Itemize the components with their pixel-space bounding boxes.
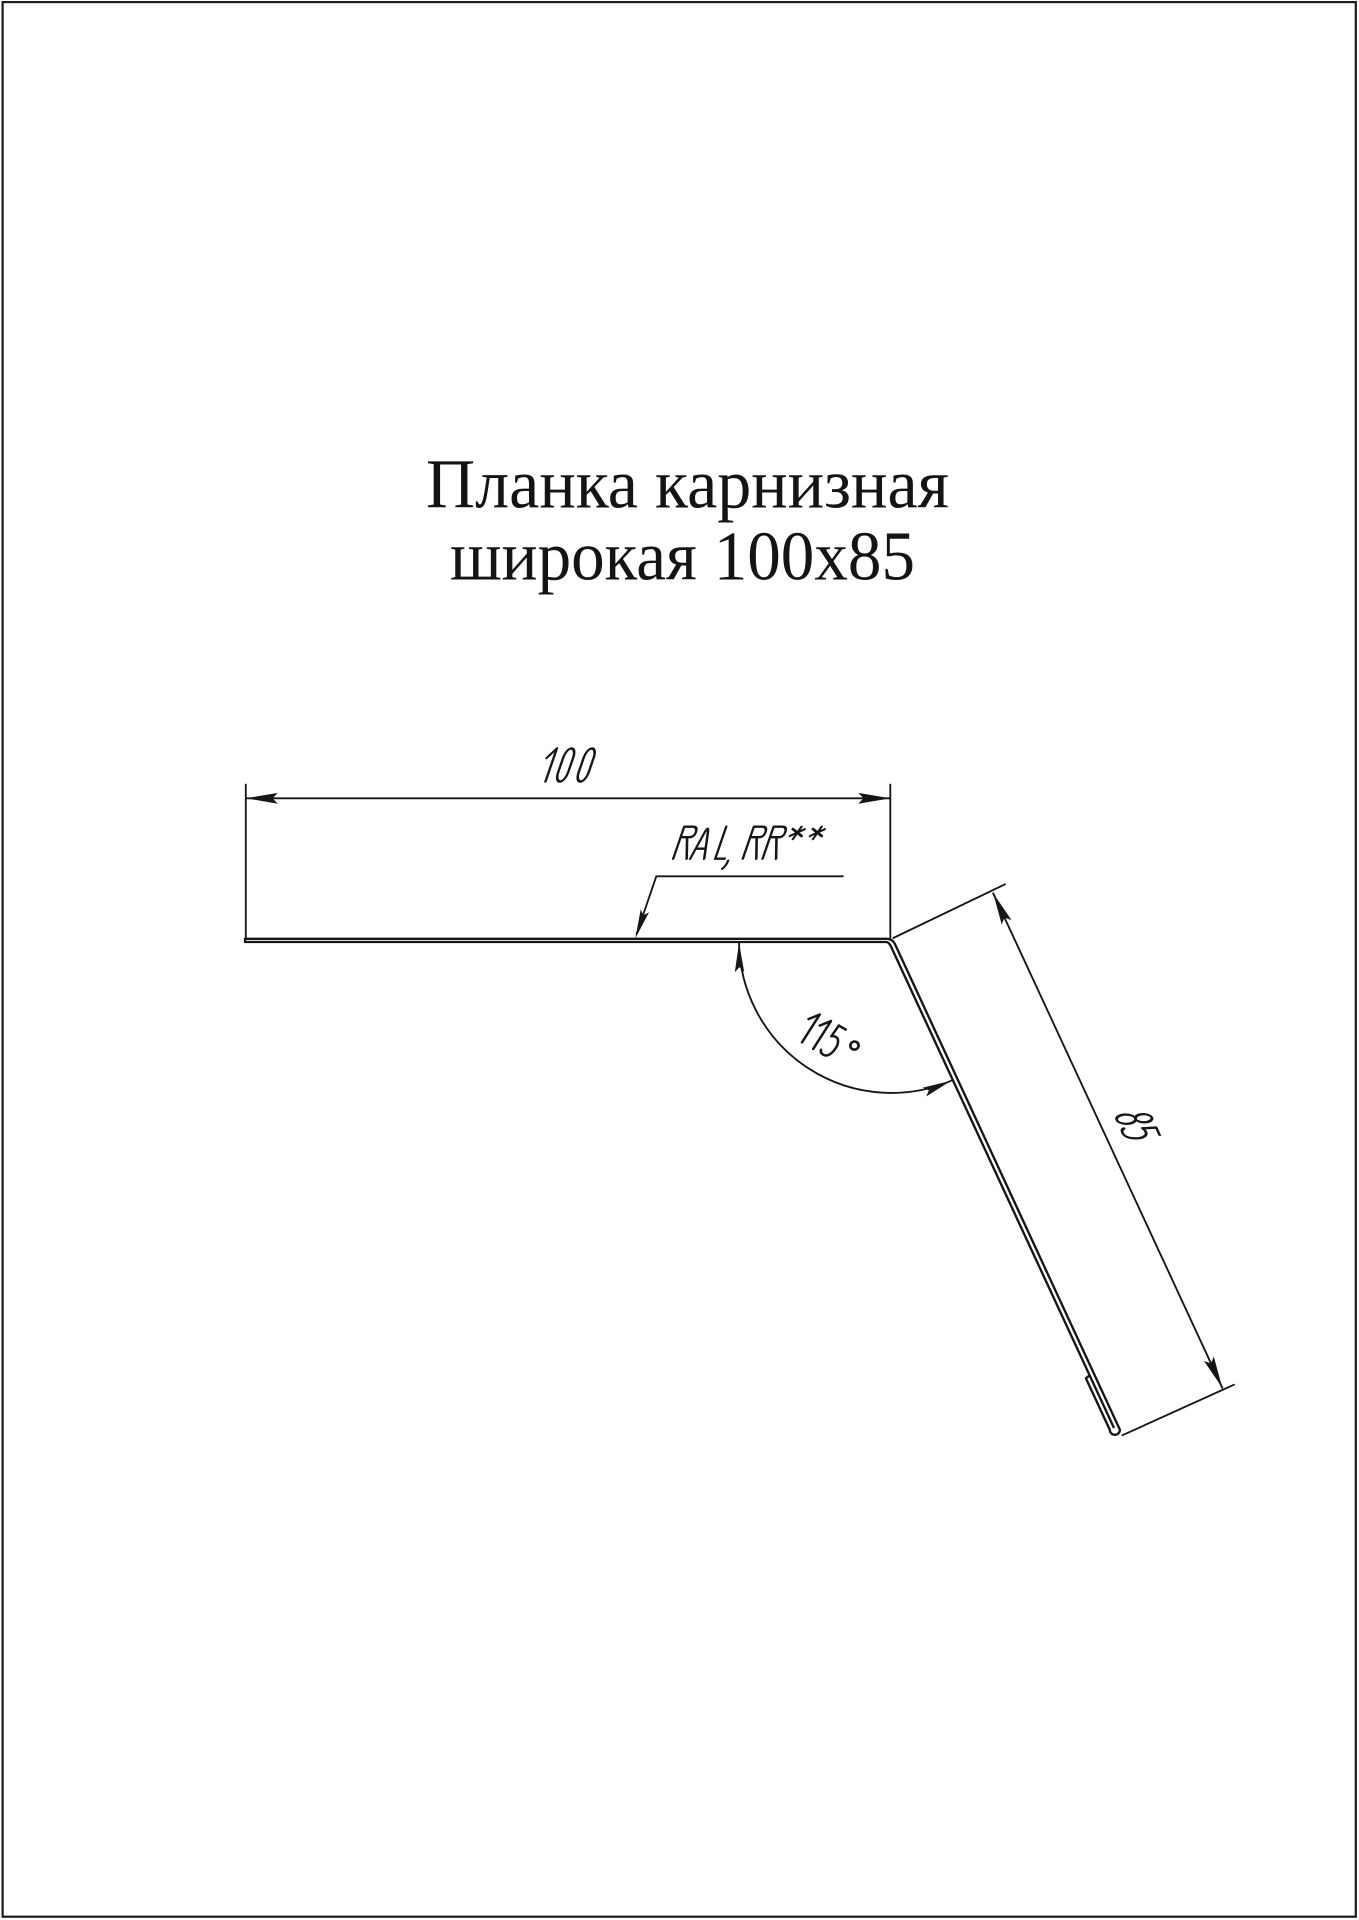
svg-text:широкая 100x85: широкая 100x85 xyxy=(450,518,915,595)
svg-text:Планка карнизная: Планка карнизная xyxy=(426,447,949,524)
